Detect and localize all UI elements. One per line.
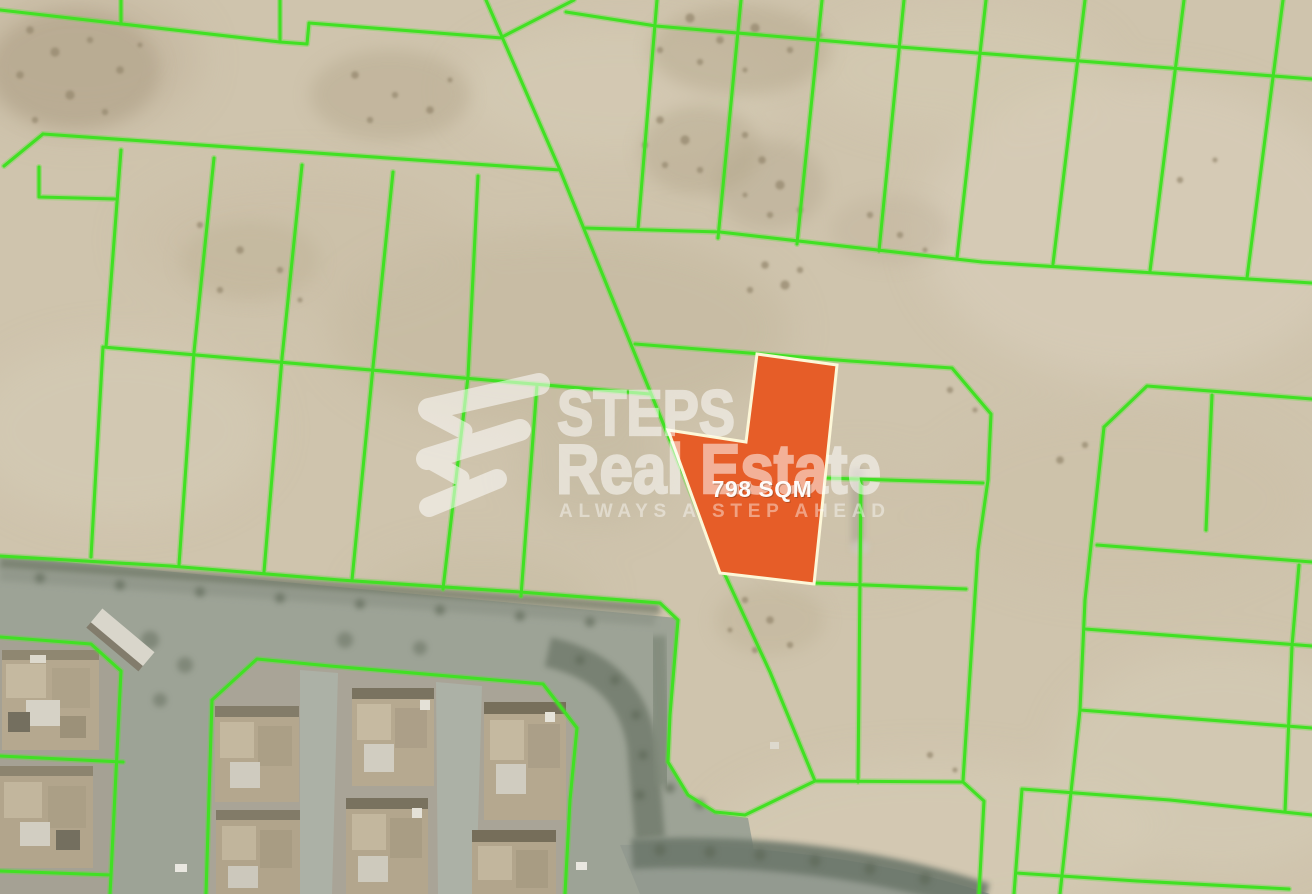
svg-text:ALWAYS A STEP AHEAD: ALWAYS A STEP AHEAD — [559, 501, 885, 522]
svg-text:798 SQM: 798 SQM — [712, 476, 813, 502]
